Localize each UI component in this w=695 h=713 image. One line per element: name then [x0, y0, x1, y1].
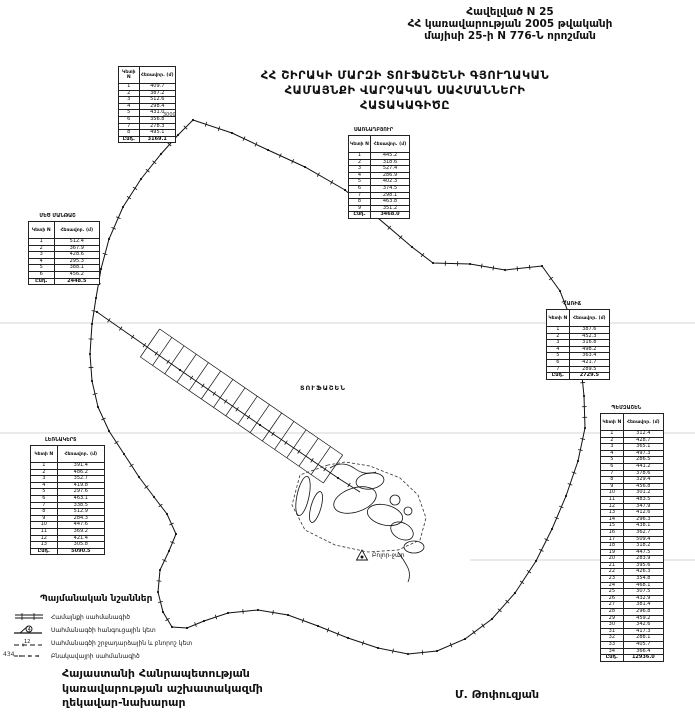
coord-table-southwest: ԼԵՌՆԱԿԵՐՏ Կետի NՀեռավոր. (մ)1391.42486.2…: [30, 437, 105, 555]
neighbor-name: ՍԱՌՆԱՂԲՅՈՒՐ: [348, 127, 399, 133]
table-header-row: Կետի NՀեռավոր. (մ): [29, 222, 100, 239]
table-total-row: Ընդ.2729.5: [547, 373, 610, 380]
coord-table-northwest: Կետի NՀեռավոր. (մ)1409.72387.23512.64298…: [118, 66, 176, 143]
authority-line2: կառավարության աշխատակազմի: [62, 682, 263, 697]
table-total-row: Ընդ.3468.0: [349, 212, 410, 219]
coord-table-north: ՍԱՌՆԱՂԲՅՈՒՐ Կետի NՀեռավոր. (մ)1445.22318…: [348, 127, 410, 219]
table-header-row: Կետի NՀեռավոր. (մ): [349, 136, 410, 153]
legend-item-label: Սահմանագծի շրջադարձային և բնորոշ կետ: [51, 640, 192, 647]
decree-ref: մայիսի 25-ի N 776-Ն որոշման: [330, 30, 690, 42]
mountain-mark: [357, 550, 368, 560]
legend-item-turning-point: 12 Սահմանագծի շրջադարձային և բնորոշ կետ: [12, 637, 192, 649]
junction-point-symbol: 4: [12, 624, 46, 636]
document-page: Հավելված N 25 ՀՀ կառավարության 2005 թվակ…: [0, 0, 695, 713]
corridor-boundary-line: [97, 312, 360, 492]
legend-item-label: Սահմանագծի հանգուցային կետ: [51, 627, 156, 634]
grid-coordinate-label: 3000: [163, 112, 176, 118]
appendix-header: Հավելված N 25 ՀՀ կառավարության 2005 թվակ…: [330, 6, 690, 42]
legend-title: Պայմանական նշաններ: [40, 594, 152, 604]
authority-line1: Հայաստանի Հանրապետության: [62, 667, 263, 682]
table-header-row: Կետի NՀեռավոր. (մ): [31, 446, 105, 463]
table-header-row: Կետի NՀեռավոր. (մ): [601, 414, 664, 431]
coord-table-west: ՄԵԾ ՄԱՆԹԱՇ Կետի NՀեռավոր. (մ)1512.42367.…: [28, 213, 100, 285]
mountain-name-label: Բոլոր-ջար: [372, 552, 405, 559]
table-total-row: Ընդ.2448.5: [29, 278, 100, 285]
table-header-row: Կետի NՀեռավոր. (մ): [119, 67, 176, 84]
decree-body: ՀՀ կառավարության 2005 թվականի: [330, 18, 690, 30]
table-total-row: Ընդ.3169.1: [119, 136, 176, 143]
settlement-boundary-symbol: [12, 650, 46, 662]
map-title-line1: ՀՀ ՇԻՐԱԿԻ ՄԱՐԶԻ ՏՈՒՖԱՇԵՆԻ ԳՅՈՒՂԱԿԱՆ: [215, 68, 595, 83]
neighbor-name: ՀԱՌԻՃ: [546, 301, 598, 307]
table-header-row: Կետի NՀեռավոր. (մ): [547, 310, 610, 327]
map-title-line3: ՀԱՏԱԿԱԳԻԾԸ: [215, 98, 595, 113]
legend-item-label: Բնակավայրի սահմանագիծ: [51, 653, 140, 660]
svg-text:4: 4: [28, 627, 31, 633]
map-title-line2: ՀԱՄԱՅՆՔԻ ՎԱՐՉԱԿԱՆ ՍԱՀՄԱՆՆԵՐԻ: [215, 83, 595, 98]
table-row: 16362.7: [601, 529, 664, 536]
legend-item-junction-point: 4 Սահմանագծի հանգուցային կետ: [12, 624, 156, 636]
appendix-number: Հավելված N 25: [330, 6, 690, 18]
svg-text:12: 12: [24, 639, 30, 645]
map-title: ՀՀ ՇԻՐԱԿԻ ՄԱՐԶԻ ՏՈՒՖԱՇԵՆԻ ԳՅՈՒՂԱԿԱՆ ՀԱՄԱ…: [215, 68, 595, 113]
issuing-authority: Հայաստանի Հանրապետության կառավարության ա…: [62, 667, 263, 711]
neighbor-name: ՄԵԾ ՄԱՆԹԱՇ: [28, 213, 87, 219]
table-total-row: Ընդ.12936.0: [601, 655, 664, 662]
signatory-name: Մ. Թոփուզյան: [455, 688, 539, 701]
table-total-row: Ընդ.5090.5: [31, 548, 105, 555]
authority-line3: ղեկավար-նախարար: [62, 696, 263, 711]
coord-table-east: ՀԱՌԻՃ Կետի NՀեռավոր. (մ)1387.62452.33316…: [546, 301, 610, 380]
settlement-name-label: ՏՈՒՖԱՇԵՆ: [300, 384, 346, 392]
coord-table-southeast: ՊԵՄԶԱՇԵՆ Կետի NՀեռավոր. (մ)1312.42428.73…: [600, 405, 664, 662]
neighbor-name: ԼԵՌՆԱԿԵՐՏ: [30, 437, 92, 443]
legend: Պայմանական նշաններ Համայնքի սահմանագիծ 4…: [12, 594, 202, 664]
turning-point-symbol: 12: [12, 637, 46, 649]
legend-item-label: Համայնքի սահմանագիծ: [51, 614, 130, 621]
legend-item-settlement-boundary: Բնակավայրի սահմանագիծ: [12, 650, 140, 662]
legend-item-community-boundary: Համայնքի սահմանագիծ: [12, 611, 130, 623]
neighbor-name: ՊԵՄԶԱՇԵՆ: [600, 405, 652, 411]
community-boundary-symbol: [12, 611, 46, 623]
